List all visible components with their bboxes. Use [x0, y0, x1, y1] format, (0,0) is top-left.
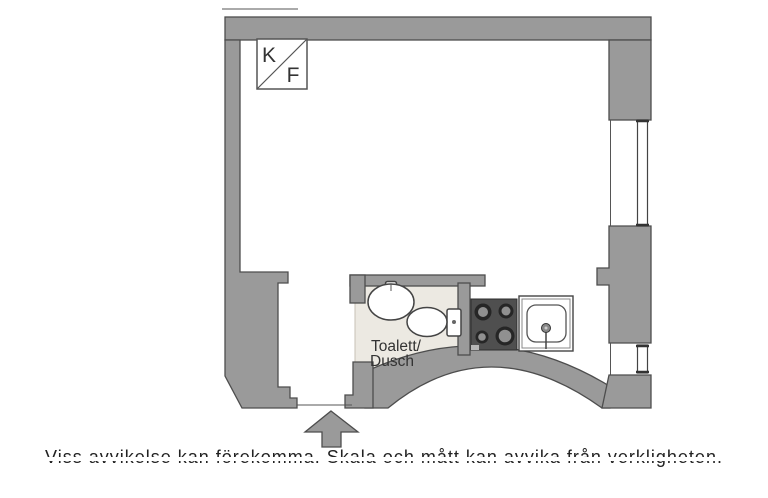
stove-notch [471, 345, 479, 350]
stove-icon [471, 299, 517, 350]
window-glass [638, 120, 648, 226]
top-wall [225, 17, 651, 40]
burner-center [478, 333, 486, 341]
bathroom-label-line2: Dusch [370, 353, 414, 370]
fridge-freezer-symbol: K F [257, 39, 307, 89]
lower-window-icon [611, 343, 650, 375]
right-wall-upper [609, 40, 651, 120]
entrance-arrow-icon [305, 411, 358, 447]
floor-plan-page: K F [0, 0, 768, 498]
toilet-icon [407, 308, 461, 337]
left-wall [225, 40, 297, 408]
burner-center [502, 307, 511, 316]
toilet-bowl [407, 308, 447, 337]
bathroom-lower-wall [345, 362, 373, 408]
bathroom-left-stub [350, 275, 365, 303]
burner-center [478, 307, 488, 317]
right-wall-middle [597, 226, 651, 343]
upper-window-icon [611, 120, 650, 226]
sink-faucet-dot [545, 327, 548, 330]
freezer-label: F [287, 64, 300, 87]
toilet-flush-button [452, 320, 456, 324]
bathroom-label: Toalett/ Dusch [370, 338, 422, 370]
burner-center [499, 330, 512, 343]
scan-artifact-gap [0, 457, 768, 461]
kitchen-sink-icon [519, 296, 573, 351]
floor-plan-drawing: K F [0, 0, 768, 498]
window-glass [638, 345, 648, 373]
fridge-label: K [262, 44, 276, 67]
right-wall-lower [602, 375, 651, 408]
